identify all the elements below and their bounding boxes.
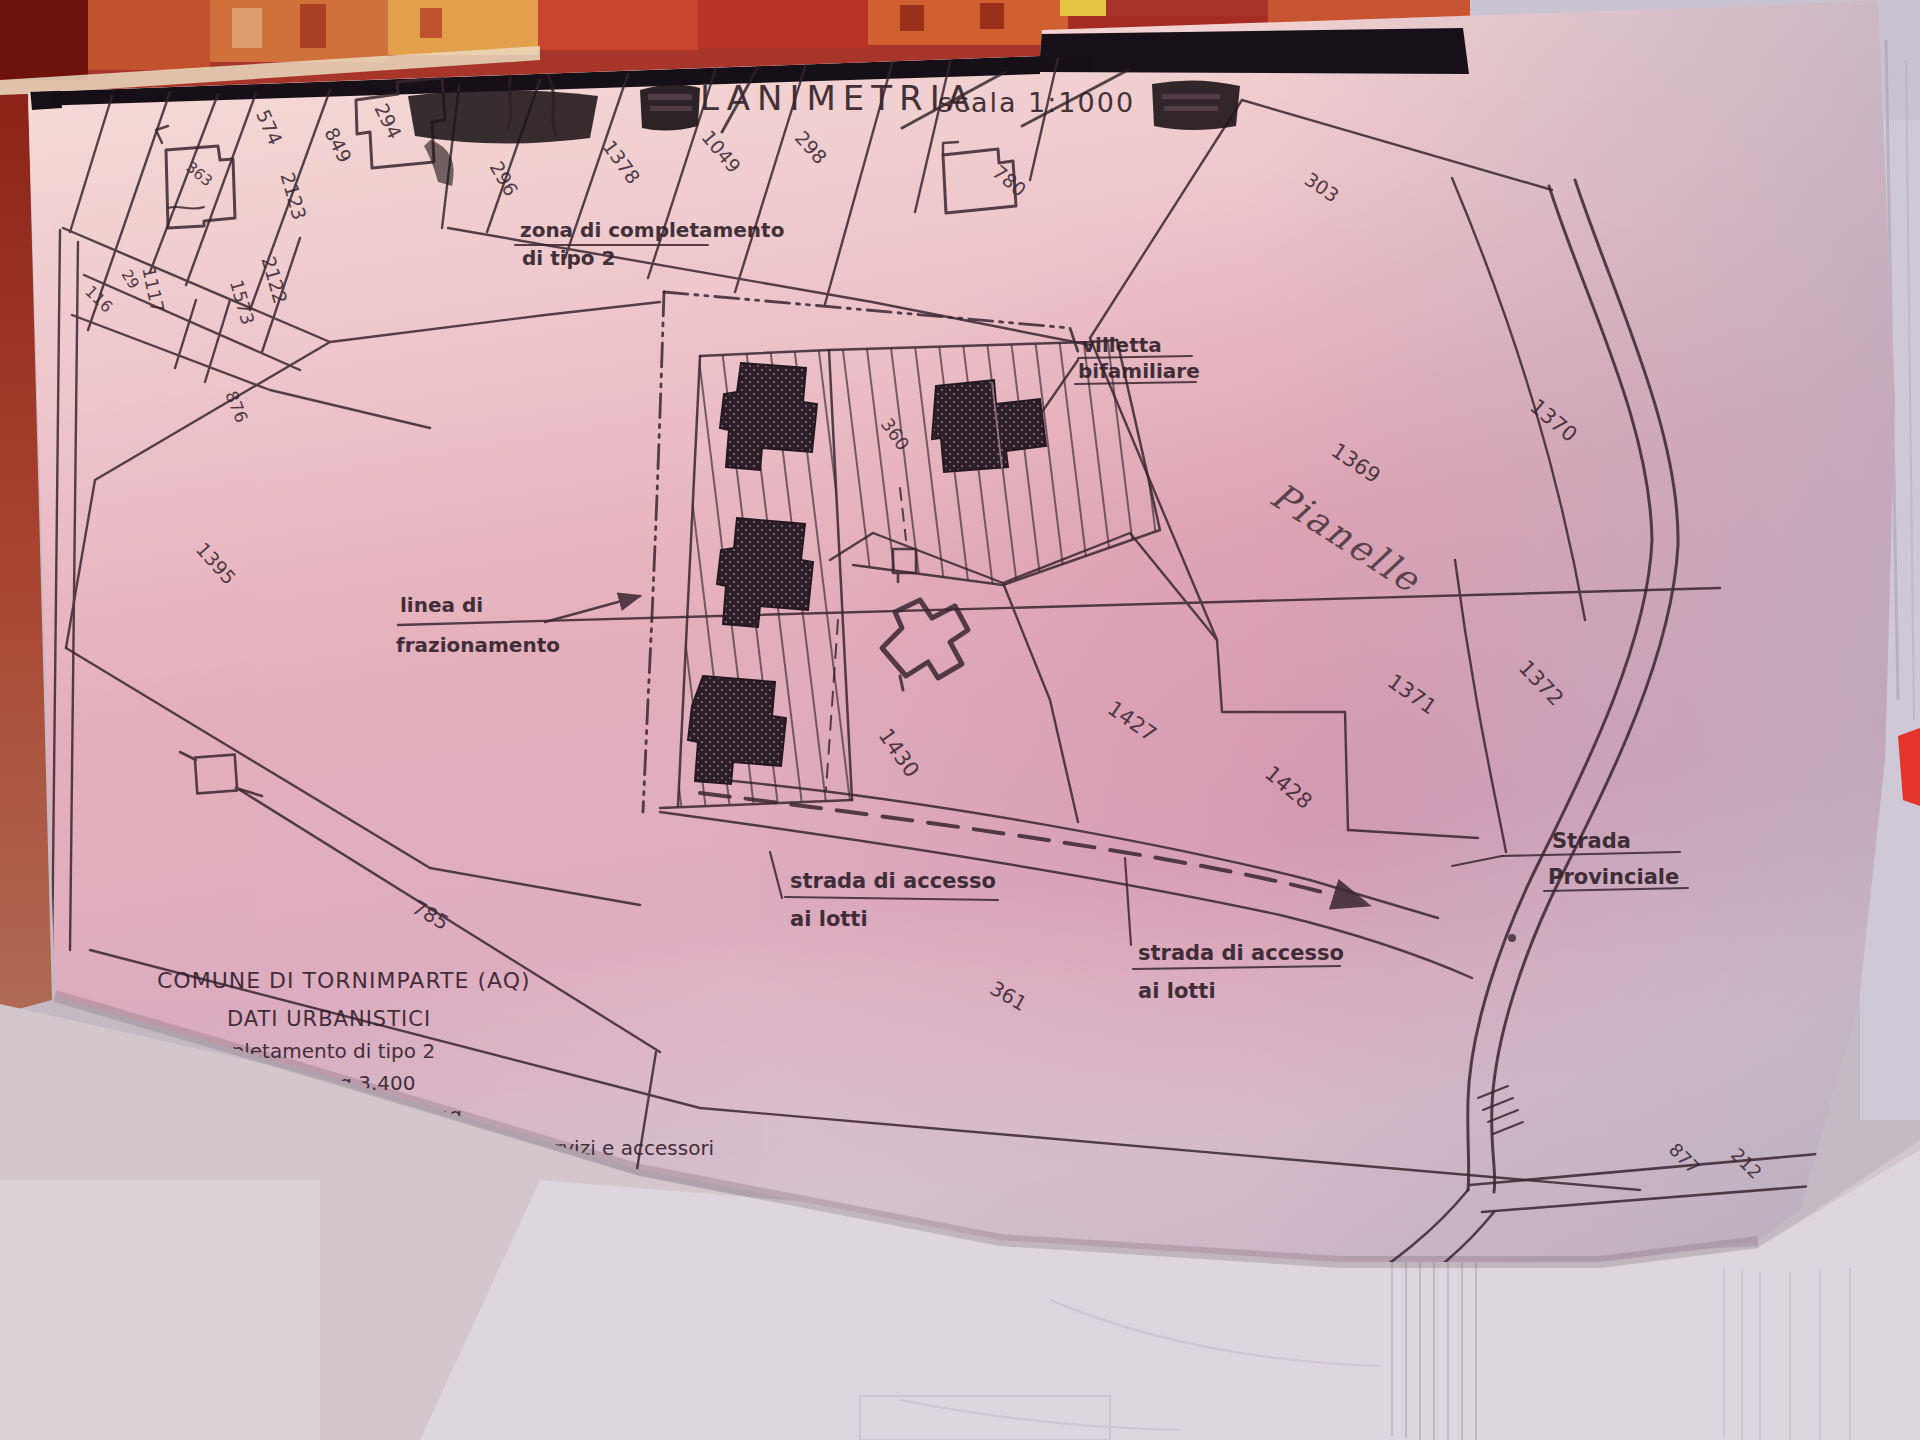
map-scale: scala 1:1000 (938, 87, 1135, 118)
svg-text:zona di completamento: zona di completamento (520, 218, 784, 242)
dati-title: DATI URBANISTICI (227, 1007, 431, 1031)
map-title: LANIMETRIA (700, 78, 977, 118)
svg-text:Provinciale: Provinciale (1548, 865, 1679, 889)
svg-text:ai lotti: ai lotti (790, 907, 868, 931)
svg-text:ai lotti: ai lotti (1138, 979, 1216, 1003)
svg-text:frazionamento: frazionamento (396, 633, 560, 657)
svg-text:linea di: linea di (400, 593, 483, 617)
planimetria-photo: LANIMETRIA scala 1:1000 zona di completa… (0, 0, 1920, 1440)
svg-text:bifamiliare: bifamiliare (1078, 359, 1200, 383)
photo-of-site-plan: LANIMETRIA scala 1:1000 zona di completa… (0, 0, 1920, 1440)
paper-sheet (28, 0, 1895, 1262)
svg-text:villetta: villetta (1082, 333, 1162, 357)
svg-text:Strada: Strada (1552, 829, 1631, 853)
svg-text:strada di accesso: strada di accesso (790, 869, 996, 893)
comune-title: COMUNE DI TORNIMPARTE (AQ) (157, 968, 531, 993)
svg-text:di tipo 2: di tipo 2 (522, 246, 616, 270)
svg-text:strada di accesso: strada di accesso (1138, 941, 1344, 965)
